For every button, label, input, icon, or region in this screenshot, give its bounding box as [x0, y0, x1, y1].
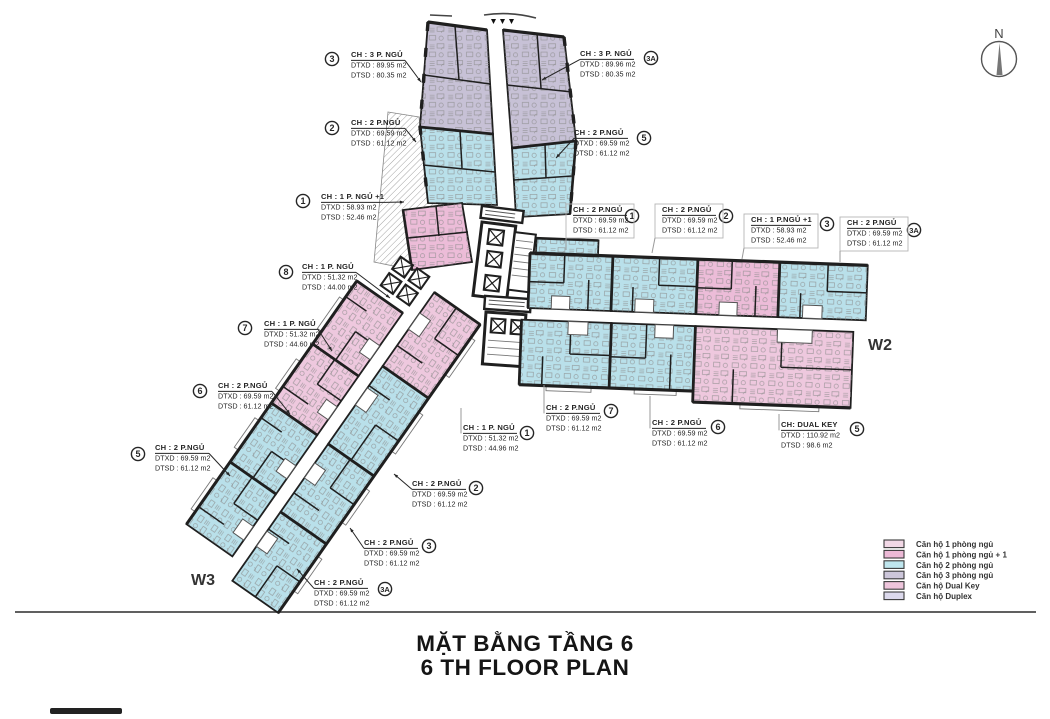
svg-text:CH : 2 P.NGỦ: CH : 2 P.NGỦ [314, 578, 364, 587]
svg-text:DTSD : 61.12 m2: DTSD : 61.12 m2 [662, 226, 718, 235]
svg-text:6: 6 [715, 422, 720, 432]
svg-text:Căn hộ Duplex: Căn hộ Duplex [916, 592, 973, 601]
svg-text:CH : 3 P. NGỦ: CH : 3 P. NGỦ [351, 50, 403, 59]
svg-text:3: 3 [426, 541, 431, 551]
svg-text:DTSD : 61.12 m2: DTSD : 61.12 m2 [314, 599, 370, 608]
svg-text:DTXD : 69.59 m2: DTXD : 69.59 m2 [546, 414, 602, 423]
svg-text:3: 3 [824, 219, 829, 229]
svg-text:3A: 3A [380, 585, 390, 594]
svg-text:N: N [994, 26, 1003, 41]
svg-text:DTXD : 69.59 m2: DTXD : 69.59 m2 [155, 454, 211, 463]
svg-text:DTXD : 69.59 m2: DTXD : 69.59 m2 [412, 490, 468, 499]
svg-text:DTXD : 69.59 m2: DTXD : 69.59 m2 [662, 216, 718, 225]
svg-text:6: 6 [197, 386, 202, 396]
svg-text:DTXD : 58.93 m2: DTXD : 58.93 m2 [321, 203, 377, 212]
svg-text:DTXD : 69.59 m2: DTXD : 69.59 m2 [364, 549, 420, 558]
svg-text:DTSD : 52.46 m2: DTSD : 52.46 m2 [751, 236, 807, 245]
svg-text:CH : 2 P.NGỦ: CH : 2 P.NGỦ [574, 128, 624, 137]
svg-text:DTXD : 51.32 m2: DTXD : 51.32 m2 [302, 273, 358, 282]
svg-text:CH : 1 P. NGỦ: CH : 1 P. NGỦ [264, 319, 316, 328]
svg-text:CH : 2 P.NGỦ: CH : 2 P.NGỦ [573, 205, 623, 214]
svg-text:DTXD : 110.92 m2: DTXD : 110.92 m2 [781, 431, 840, 440]
svg-text:MẶT BẰNG TẦNG 6: MẶT BẰNG TẦNG 6 [416, 631, 634, 656]
svg-text:8: 8 [283, 267, 288, 277]
svg-text:6 TH FLOOR PLAN: 6 TH FLOOR PLAN [421, 655, 630, 680]
svg-text:5: 5 [641, 133, 646, 143]
svg-text:DTXD : 69.59 m2: DTXD : 69.59 m2 [314, 589, 370, 598]
svg-text:DTSD : 61.12 m2: DTSD : 61.12 m2 [546, 424, 602, 433]
svg-text:DTXD : 89.96 m2: DTXD : 89.96 m2 [580, 60, 636, 69]
svg-text:DTSD : 52.46 m2: DTSD : 52.46 m2 [321, 213, 377, 222]
svg-text:W3: W3 [191, 572, 215, 589]
svg-text:DTSD : 61.12 m2: DTSD : 61.12 m2 [218, 402, 274, 411]
svg-text:DTSD : 44.96 m2: DTSD : 44.96 m2 [463, 444, 519, 453]
svg-text:7: 7 [608, 406, 613, 416]
svg-text:DTXD : 51.32 m2: DTXD : 51.32 m2 [264, 330, 320, 339]
svg-text:Căn hộ 1 phòng ngủ: Căn hộ 1 phòng ngủ [916, 540, 993, 549]
svg-text:DTXD : 69.59 m2: DTXD : 69.59 m2 [351, 129, 407, 138]
svg-text:CH : 2 P.NGỦ: CH : 2 P.NGỦ [546, 403, 596, 412]
svg-text:DTXD : 69.59 m2: DTXD : 69.59 m2 [652, 429, 708, 438]
svg-text:DTSD : 61.12 m2: DTSD : 61.12 m2 [155, 464, 211, 473]
svg-text:DTXD : 69.59 m2: DTXD : 69.59 m2 [847, 229, 903, 238]
svg-text:1: 1 [300, 196, 305, 206]
svg-text:3A: 3A [646, 54, 656, 63]
svg-text:Căn hộ 3 phòng ngủ: Căn hộ 3 phòng ngủ [916, 571, 993, 580]
svg-text:1: 1 [524, 428, 529, 438]
svg-text:DTSD : 80.35 m2: DTSD : 80.35 m2 [580, 70, 636, 79]
svg-text:DTSD : 61.12 m2: DTSD : 61.12 m2 [574, 149, 630, 158]
svg-text:Căn hộ 1 phòng ngủ + 1: Căn hộ 1 phòng ngủ + 1 [916, 550, 1007, 559]
svg-text:CH : 1 P. NGỦ +1: CH : 1 P. NGỦ +1 [321, 192, 385, 201]
svg-text:2: 2 [329, 123, 334, 133]
svg-text:DTSD : 61.12 m2: DTSD : 61.12 m2 [847, 239, 903, 248]
svg-text:CH : 1 P. NGỦ: CH : 1 P. NGỦ [463, 423, 515, 432]
svg-text:2: 2 [723, 211, 728, 221]
svg-text:CH : 3 P. NGỦ: CH : 3 P. NGỦ [580, 49, 632, 58]
svg-text:DTXD : 69.59 m2: DTXD : 69.59 m2 [218, 392, 274, 401]
svg-text:DTXD : 69.59 m2: DTXD : 69.59 m2 [573, 216, 629, 225]
svg-text:CH : 2 P.NGỦ: CH : 2 P.NGỦ [412, 479, 462, 488]
svg-text:DTSD : 98.6 m2: DTSD : 98.6 m2 [781, 441, 833, 450]
svg-text:CH : 1 P. NGỦ: CH : 1 P. NGỦ [302, 262, 354, 271]
svg-text:2: 2 [473, 483, 478, 493]
svg-text:CH : 2 P.NGỦ: CH : 2 P.NGỦ [847, 218, 897, 227]
svg-text:Căn hộ 2 phòng ngủ: Căn hộ 2 phòng ngủ [916, 561, 993, 570]
svg-text:Căn hộ Dual Key: Căn hộ Dual Key [916, 582, 980, 591]
svg-text:CH : 1 P.NGỦ +1: CH : 1 P.NGỦ +1 [751, 215, 812, 224]
svg-text:DTSD : 61.12 m2: DTSD : 61.12 m2 [412, 500, 468, 509]
svg-text:CH : 2 P.NGỦ: CH : 2 P.NGỦ [662, 205, 712, 214]
svg-text:5: 5 [135, 449, 140, 459]
svg-text:DTXD : 89.95 m2: DTXD : 89.95 m2 [351, 61, 407, 70]
svg-text:CH : 2 P.NGỦ: CH : 2 P.NGỦ [351, 118, 401, 127]
svg-text:DTSD : 44.00 m2: DTSD : 44.00 m2 [302, 283, 358, 292]
svg-text:7: 7 [242, 323, 247, 333]
svg-text:CH : 2 P.NGỦ: CH : 2 P.NGỦ [218, 381, 268, 390]
svg-text:DTSD : 61.12 m2: DTSD : 61.12 m2 [364, 559, 420, 568]
svg-text:DTXD : 58.93 m2: DTXD : 58.93 m2 [751, 226, 807, 235]
svg-text:DTSD : 44.60 m2: DTSD : 44.60 m2 [264, 340, 320, 349]
svg-text:DTXD : 69.59 m2: DTXD : 69.59 m2 [574, 139, 630, 148]
svg-text:CH : 2 P.NGỦ: CH : 2 P.NGỦ [652, 418, 702, 427]
svg-text:DTSD : 80.35 m2: DTSD : 80.35 m2 [351, 71, 407, 80]
svg-text:DTXD : 51.32 m2: DTXD : 51.32 m2 [463, 434, 519, 443]
svg-text:DTSD : 61.12 m2: DTSD : 61.12 m2 [573, 226, 629, 235]
svg-text:W2: W2 [868, 337, 892, 354]
svg-text:DTSD : 61.12 m2: DTSD : 61.12 m2 [652, 439, 708, 448]
svg-text:DTSD : 61.12 m2: DTSD : 61.12 m2 [351, 139, 407, 148]
svg-text:5: 5 [854, 424, 859, 434]
svg-text:CH : 2 P.NGỦ: CH : 2 P.NGỦ [364, 538, 414, 547]
svg-text:CH : 2 P.NGỦ: CH : 2 P.NGỦ [155, 443, 205, 452]
svg-text:3: 3 [329, 54, 334, 64]
svg-text:CH: DUAL KEY: CH: DUAL KEY [781, 420, 838, 429]
svg-text:3A: 3A [909, 226, 919, 235]
